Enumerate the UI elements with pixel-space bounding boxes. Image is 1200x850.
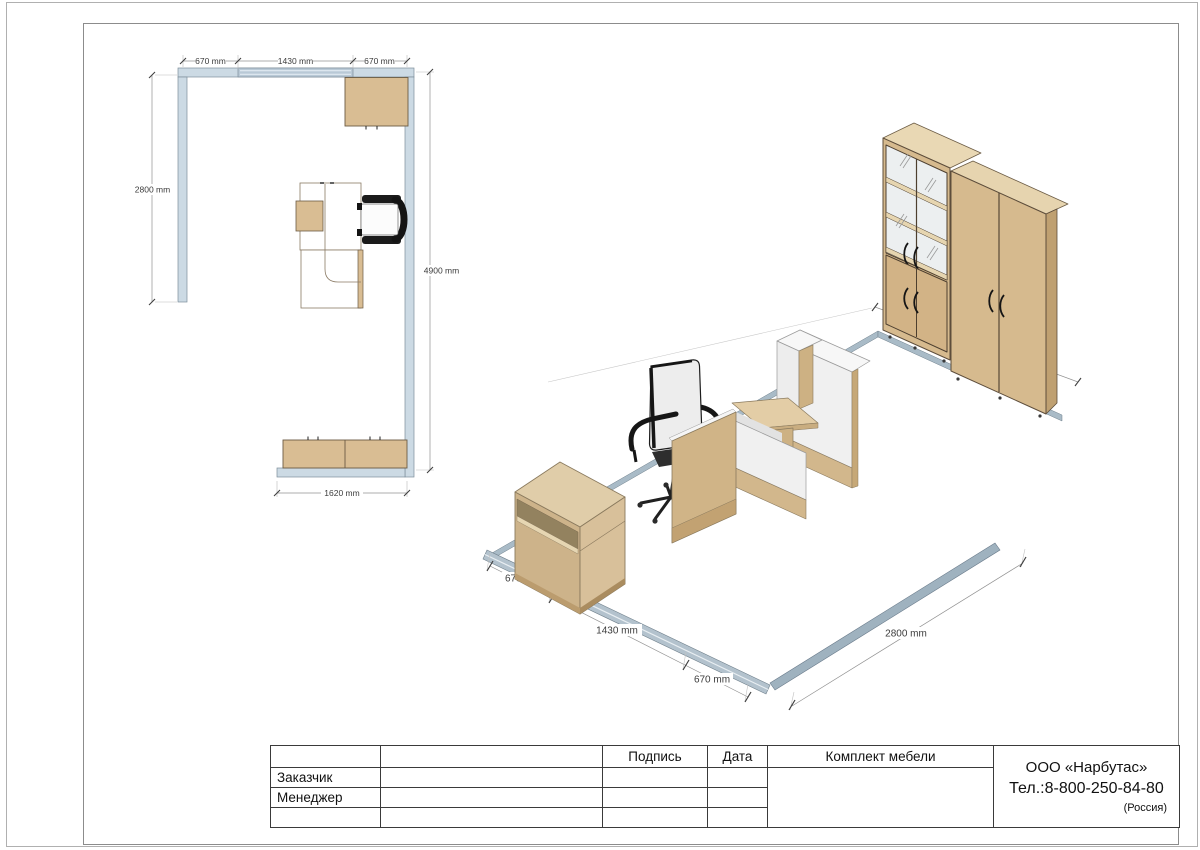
plan-dim-bottom: 1620 mm (274, 481, 410, 498)
drawing-sheet: 670 mm 1430 mm 670 mm 2800 mm (0, 0, 1200, 850)
tb-kit-body-field[interactable] (768, 768, 994, 827)
plan-dim-left: 2800 mm (132, 72, 177, 305)
plan-walls (178, 68, 414, 477)
plan-dim-right: 4900 mm (416, 69, 462, 473)
plan-low-cabinets (283, 437, 407, 469)
tb-label-customer: Заказчик (271, 768, 381, 788)
tb-cell-empty[interactable] (603, 808, 708, 827)
plan-window (238, 68, 353, 77)
plan-wall-cabinet (345, 78, 408, 130)
tb-header-kit: Комплект мебели (768, 746, 994, 768)
plan-dim-right-label: 4900 mm (424, 266, 459, 276)
iso-dim-front-2: 1430 mm (596, 626, 638, 637)
plan-dim-top-3: 670 mm (364, 56, 395, 66)
company-country: (Россия) (998, 801, 1175, 816)
plan-desk-pedestal (296, 201, 323, 231)
tb-header-signature: Подпись (603, 746, 708, 768)
tb-manager-date-field[interactable] (708, 788, 768, 808)
iso-dim-side: 2800 mm (789, 549, 1026, 710)
iso-dim-side-label: 2800 mm (885, 629, 927, 640)
tb-manager-signature-field[interactable] (603, 788, 708, 808)
iso-tall-cabinets (883, 123, 1068, 418)
tb-company-info: ООО «Нарбутас» Тел.:8-800-250-84-80 (Рос… (994, 746, 1179, 827)
tb-cell-empty[interactable] (381, 808, 603, 827)
tb-cell-empty[interactable] (381, 746, 603, 768)
tb-cell-empty[interactable] (708, 808, 768, 827)
tb-manager-name-field[interactable] (381, 788, 603, 808)
plan-dim-top: 670 mm 1430 mm 670 mm (180, 55, 410, 69)
iso-dim-front-3: 670 mm (694, 675, 730, 686)
plan-dim-top-2: 1430 mm (278, 56, 313, 66)
tb-cell-empty[interactable] (271, 746, 381, 768)
iso-pedestal-cabinet (515, 462, 625, 614)
iso-reception-desk (669, 330, 870, 543)
tb-customer-date-field[interactable] (708, 768, 768, 788)
isometric-view: 670 mm 1430 mm 670 mm 2800 mm (483, 123, 1081, 710)
tb-header-date: Дата (708, 746, 768, 768)
plan-dim-top-1: 670 mm (195, 56, 226, 66)
wardrobe-cabinet (951, 161, 1068, 418)
tb-label-manager: Менеджер (271, 788, 381, 808)
plan-chair (357, 195, 404, 244)
plan-dim-bottom-label: 1620 mm (324, 488, 359, 498)
plan-desk (296, 183, 363, 308)
tb-customer-signature-field[interactable] (603, 768, 708, 788)
tb-cell-empty[interactable] (271, 808, 381, 827)
title-block: Подпись Дата Комплект мебели Заказчик Ме… (270, 745, 1180, 828)
tb-customer-name-field[interactable] (381, 768, 603, 788)
floor-plan: 670 mm 1430 mm 670 mm 2800 mm (132, 55, 462, 498)
company-name: ООО «Нарбутас» (998, 757, 1175, 778)
plan-dim-left-label: 2800 mm (135, 185, 170, 195)
iso-side-wall (770, 543, 1000, 690)
drawing-canvas: 670 mm 1430 mm 670 mm 2800 mm (0, 0, 1200, 850)
company-phone: Тел.:8-800-250-84-80 (998, 778, 1175, 800)
